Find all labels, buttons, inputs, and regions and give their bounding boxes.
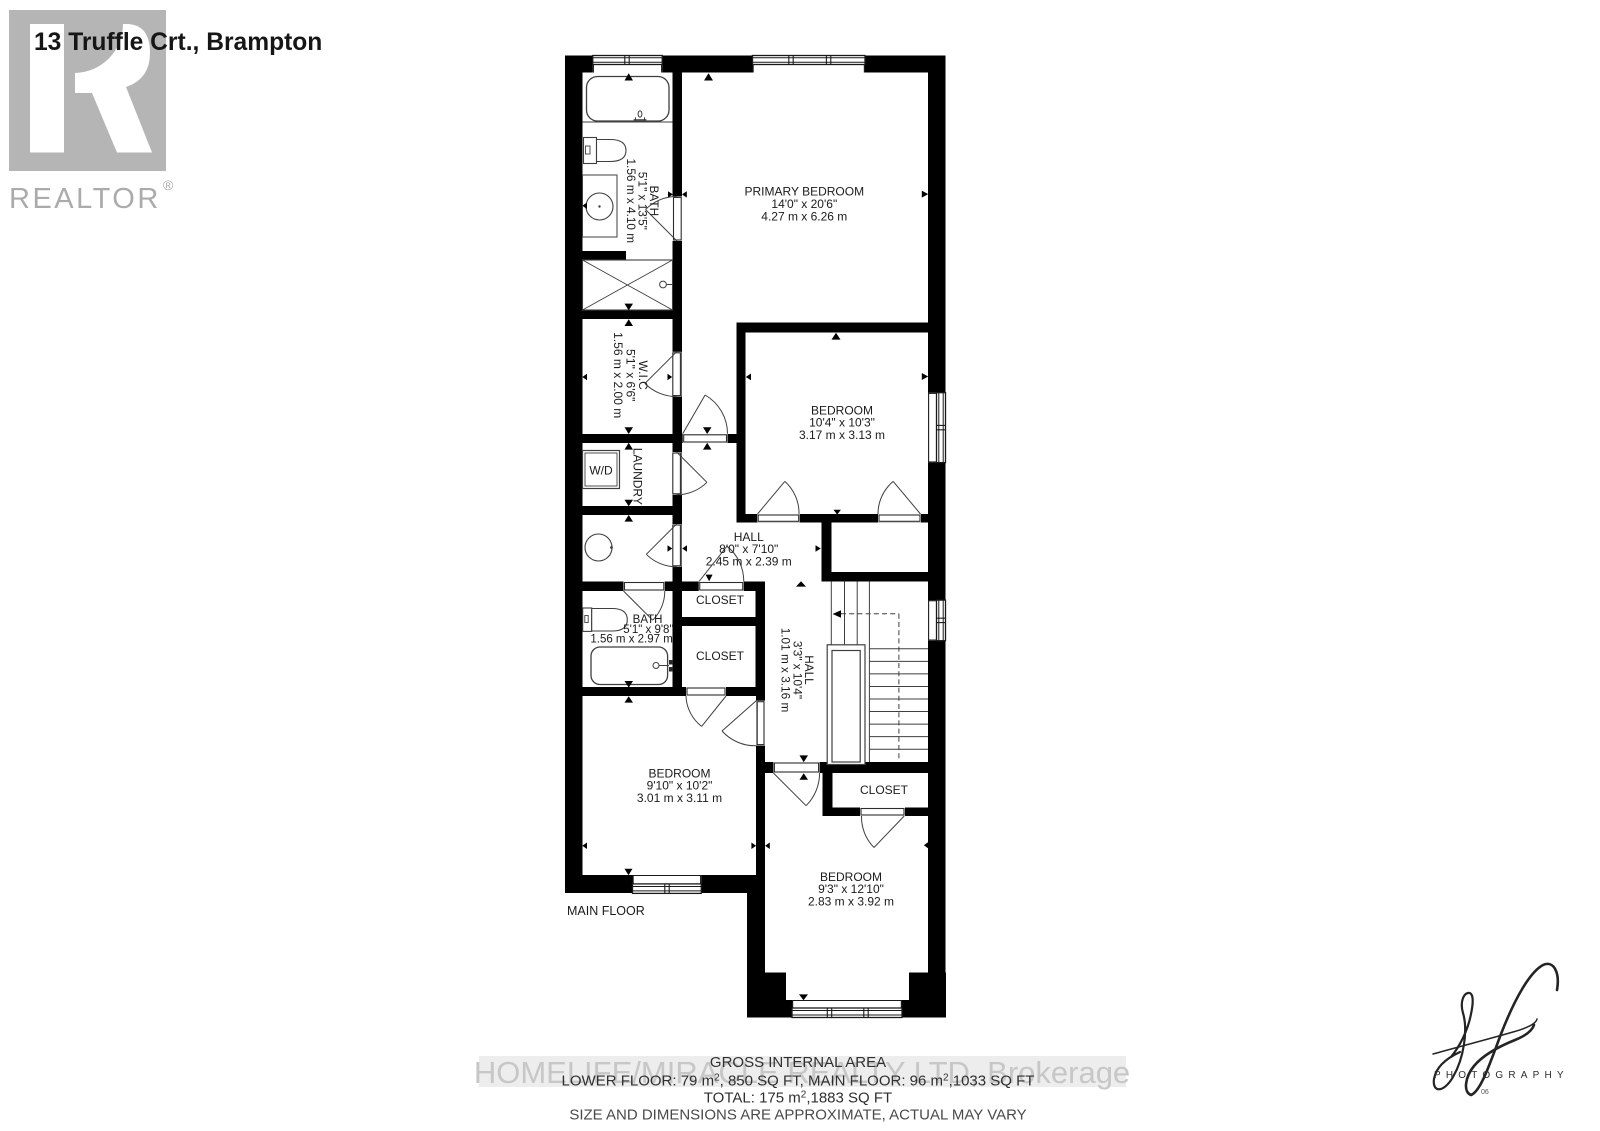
- svg-text:1.56 m x 2.00 m: 1.56 m x 2.00 m: [611, 332, 625, 418]
- svg-text:3.01 m x 3.11 m: 3.01 m x 3.11 m: [637, 791, 722, 805]
- svg-text:PHOTOGRAPHY: PHOTOGRAPHY: [1434, 1070, 1569, 1081]
- svg-text:1.01 m x 3.16 m: 1.01 m x 3.16 m: [779, 628, 793, 713]
- svg-text:4.27 m x 6.26 m: 4.27 m x 6.26 m: [761, 209, 847, 223]
- svg-text:CLOSET: CLOSET: [696, 593, 745, 607]
- svg-text:CLOSET: CLOSET: [696, 649, 745, 663]
- svg-text:CLOSET: CLOSET: [860, 783, 909, 797]
- svg-text:REALTOR: REALTOR: [9, 183, 161, 215]
- svg-text:TOTAL: 175 m2,1883 SQ FT: TOTAL: 175 m2,1883 SQ FT: [704, 1090, 892, 1107]
- svg-text:3.17 m x 3.13 m: 3.17 m x 3.13 m: [799, 428, 885, 442]
- svg-text:SIZE AND DIMENSIONS ARE APPROX: SIZE AND DIMENSIONS ARE APPROXIMATE, ACT…: [569, 1107, 1026, 1124]
- svg-text:W/D: W/D: [589, 464, 613, 478]
- svg-text:®: ®: [163, 177, 174, 193]
- svg-text:2.83 m x 3.92 m: 2.83 m x 3.92 m: [808, 895, 894, 909]
- svg-text:MAIN FLOOR: MAIN FLOOR: [567, 904, 645, 918]
- svg-text:LAUNDRY: LAUNDRY: [631, 448, 645, 505]
- svg-text:13 Truffle Crt., Brampton: 13 Truffle Crt., Brampton: [34, 29, 322, 56]
- svg-text:LOWER FLOOR: 79 m2, 850 SQ FT,: LOWER FLOOR: 79 m2, 850 SQ FT, MAIN FLOO…: [562, 1073, 1035, 1090]
- svg-text:06: 06: [1481, 1089, 1489, 1096]
- svg-text:GROSS INTERNAL AREA: GROSS INTERNAL AREA: [710, 1054, 886, 1071]
- svg-text:1.56 m x 4.10 m: 1.56 m x 4.10 m: [624, 159, 638, 244]
- svg-text:1.56 m x 2.97 m: 1.56 m x 2.97 m: [590, 634, 672, 646]
- svg-text:2.45 m x 2.39 m: 2.45 m x 2.39 m: [706, 555, 792, 569]
